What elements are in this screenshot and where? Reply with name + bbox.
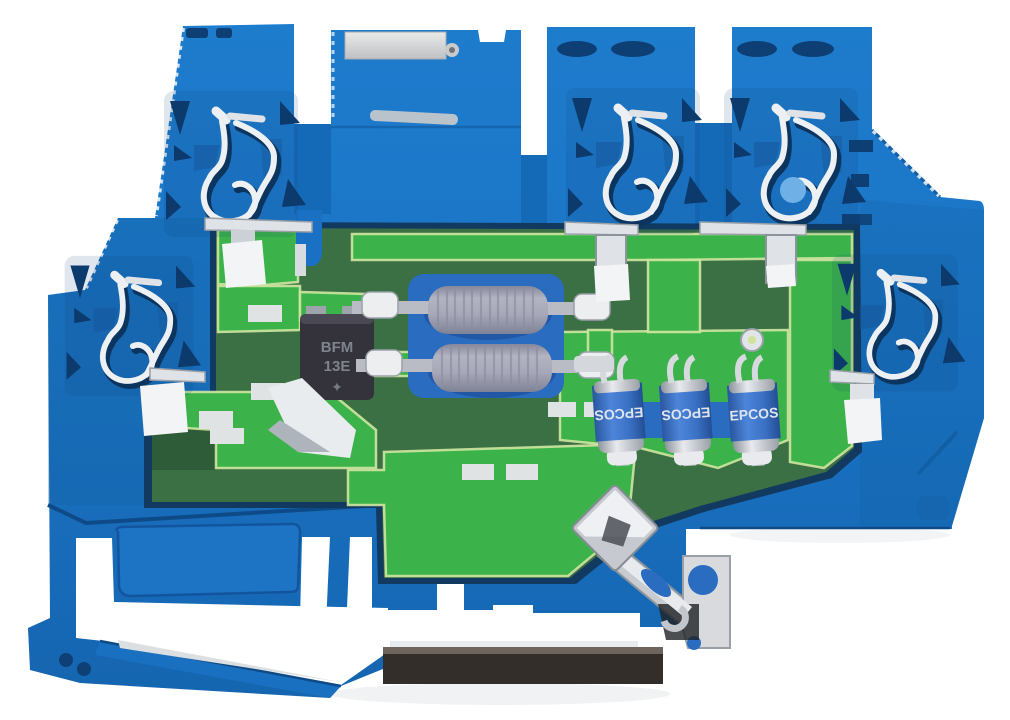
svg-text:✦: ✦ bbox=[331, 379, 343, 395]
svg-text:EPCOS: EPCOS bbox=[729, 404, 779, 423]
svg-text:13E: 13E bbox=[324, 358, 351, 375]
svg-text:EPCOS: EPCOS bbox=[661, 404, 711, 423]
svg-text:BFM: BFM bbox=[321, 339, 354, 356]
svg-text:EPCOS: EPCOS bbox=[594, 404, 644, 423]
